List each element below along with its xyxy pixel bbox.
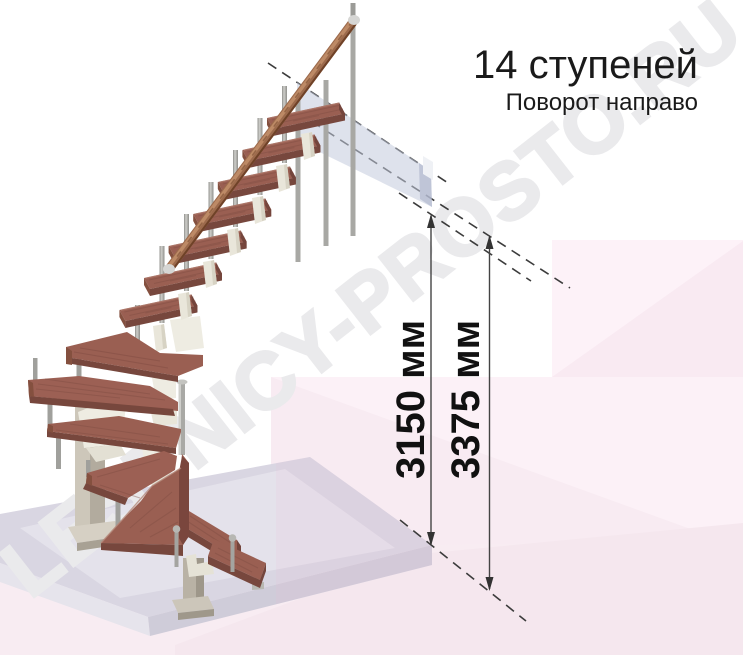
svg-text:3150 мм: 3150 мм (389, 320, 433, 479)
svg-text:3375 мм: 3375 мм (444, 320, 488, 479)
svg-text:14 ступеней: 14 ступеней (473, 43, 698, 87)
svg-text:Поворот направо: Поворот направо (506, 89, 698, 116)
